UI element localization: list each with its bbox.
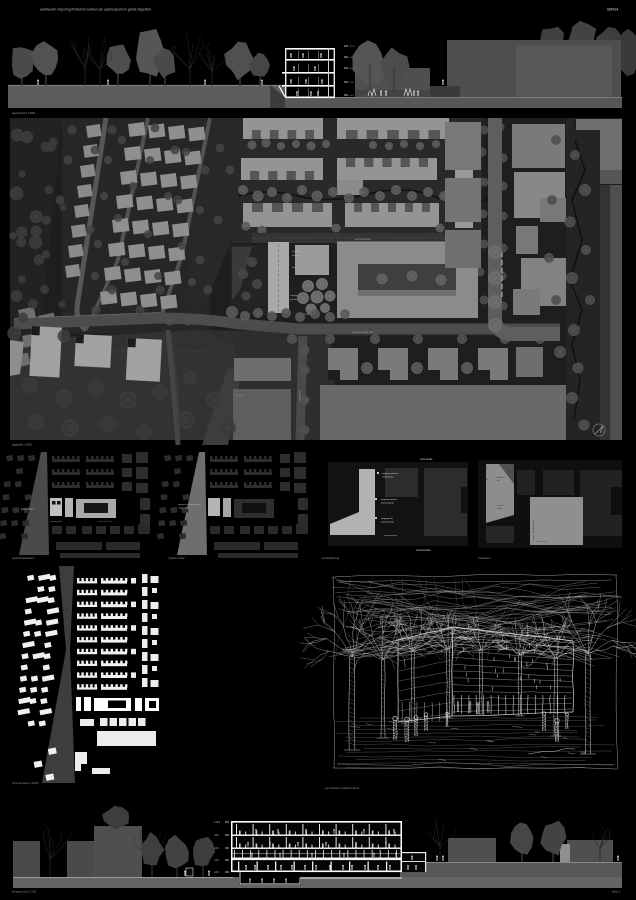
svg-text:kita: kita — [497, 479, 500, 482]
svg-text:+12.0: +12.0 — [349, 46, 355, 48]
svg-text:quartiersplatz: quartiersplatz — [384, 534, 397, 537]
svg-text:treff: treff — [484, 478, 488, 481]
svg-text:längsschnitt 1:200: längsschnitt 1:200 — [12, 890, 37, 894]
svg-text:erschließung: erschließung — [322, 556, 340, 560]
svg-text:+6.0: +6.0 — [214, 847, 219, 850]
svg-text:"grüne mitte": "grüne mitte" — [20, 508, 34, 511]
svg-text:freiräume: freiräume — [478, 556, 491, 560]
svg-text:+0.0: +0.0 — [214, 871, 219, 874]
svg-text:quartierstraße süd: quartierstraße süd — [352, 330, 374, 334]
svg-text:quartierstraße: quartierstraße — [416, 549, 432, 552]
svg-text:wohnen: wohnen — [292, 255, 300, 257]
svg-text:zugang zum quartierspark: zugang zum quartierspark — [178, 503, 201, 506]
svg-text:querschnitt 1:500: querschnitt 1:500 — [12, 111, 35, 115]
svg-text:quartiersplatz: quartiersplatz — [381, 502, 394, 505]
svg-text:+9.0: +9.0 — [214, 834, 219, 837]
svg-text:+0.0: +0.0 — [349, 95, 354, 97]
svg-text:wochenmarkt: wochenmarkt — [536, 540, 547, 543]
svg-text:eingang: eingang — [290, 295, 299, 297]
svg-text:freifläche: freifläche — [497, 477, 504, 479]
svg-text:eingang wohnen: eingang wohnen — [381, 499, 398, 501]
svg-text:wettbewerb mfg mit gefördertem: wettbewerb mfg mit gefördertem wohnen am… — [40, 8, 151, 12]
svg-text:'19: '19 — [580, 750, 586, 755]
svg-text:perspektive quartiersplatz: perspektive quartiersplatz — [325, 786, 360, 790]
svg-text:quartiersplatz / markt: quartiersplatz / markt — [532, 520, 535, 541]
svg-text:eingang kita: eingang kita — [381, 517, 394, 520]
svg-text:lageplan 1:500: lageplan 1:500 — [12, 443, 32, 447]
svg-text:"grüne mitte": "grüne mitte" — [168, 556, 185, 560]
svg-text:quartierspavillon: quartierspavillon — [12, 556, 34, 560]
svg-text:seite 1: seite 1 — [612, 890, 621, 894]
svg-text:quartiersplatz: quartiersplatz — [50, 520, 62, 523]
svg-text:bestand: bestand — [236, 394, 245, 397]
svg-text:"grüne mitte": "grüne mitte" — [178, 507, 190, 510]
svg-text:quartier: quartier — [290, 298, 298, 301]
svg-text:wohnstraße: wohnstraße — [355, 237, 371, 241]
svg-text:schwarzplan 1:2000: schwarzplan 1:2000 — [12, 781, 39, 785]
svg-text:gemeins.: gemeins. — [497, 505, 505, 507]
svg-text:anlieferung: anlieferung — [382, 476, 394, 479]
svg-text:eingang: eingang — [292, 251, 301, 253]
svg-text:+3.0: +3.0 — [214, 859, 219, 862]
svg-text:+12.0: +12.0 — [214, 821, 221, 824]
svg-text:garten: garten — [497, 507, 502, 510]
svg-text:wohnstraße süd: wohnstraße süd — [98, 520, 112, 523]
svg-text:685434: 685434 — [607, 8, 618, 12]
svg-text:eingang wohnen: eingang wohnen — [382, 473, 399, 475]
svg-text:wohnstraße: wohnstraße — [420, 458, 433, 461]
svg-text:quartiersplatz: quartiersplatz — [381, 521, 394, 524]
svg-text:+3.0: +3.0 — [349, 82, 354, 84]
